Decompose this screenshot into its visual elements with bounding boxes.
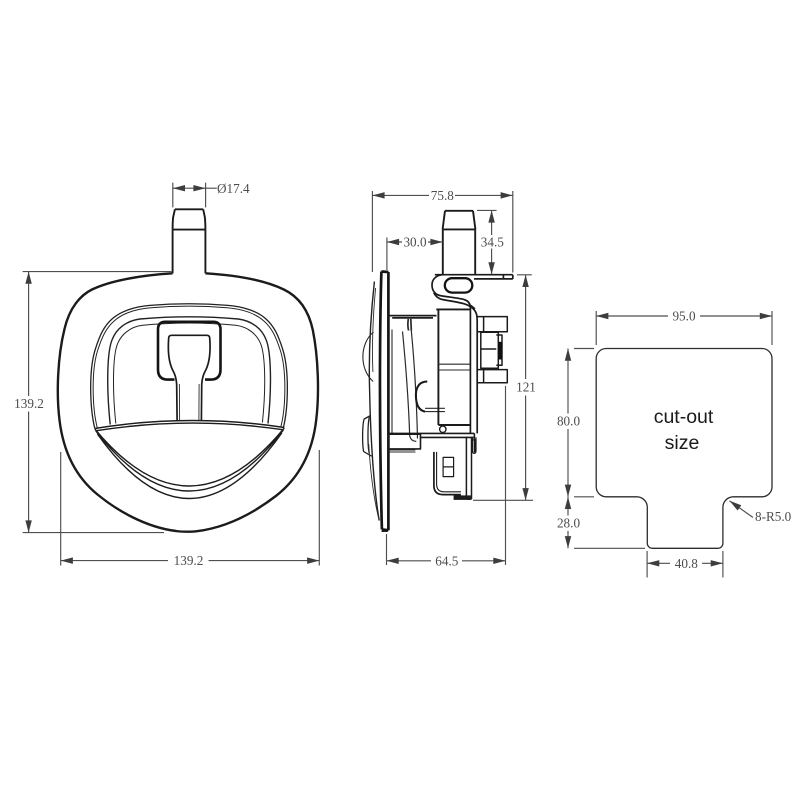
svg-text:121: 121	[516, 380, 536, 395]
svg-text:139.2: 139.2	[174, 553, 204, 568]
svg-text:8-R5.0: 8-R5.0	[755, 509, 792, 524]
svg-text:cut-out: cut-out	[654, 406, 714, 428]
svg-text:40.8: 40.8	[675, 556, 698, 571]
svg-text:139.2: 139.2	[14, 396, 44, 411]
svg-text:28.0: 28.0	[557, 516, 580, 531]
svg-text:80.0: 80.0	[557, 414, 580, 429]
svg-text:30.0: 30.0	[403, 235, 426, 250]
svg-text:75.8: 75.8	[431, 188, 454, 203]
svg-text:34.5: 34.5	[481, 234, 504, 249]
svg-text:64.5: 64.5	[435, 553, 458, 568]
svg-text:95.0: 95.0	[672, 309, 695, 324]
svg-text:size: size	[665, 432, 700, 454]
svg-text:Ø17.4: Ø17.4	[217, 181, 250, 196]
